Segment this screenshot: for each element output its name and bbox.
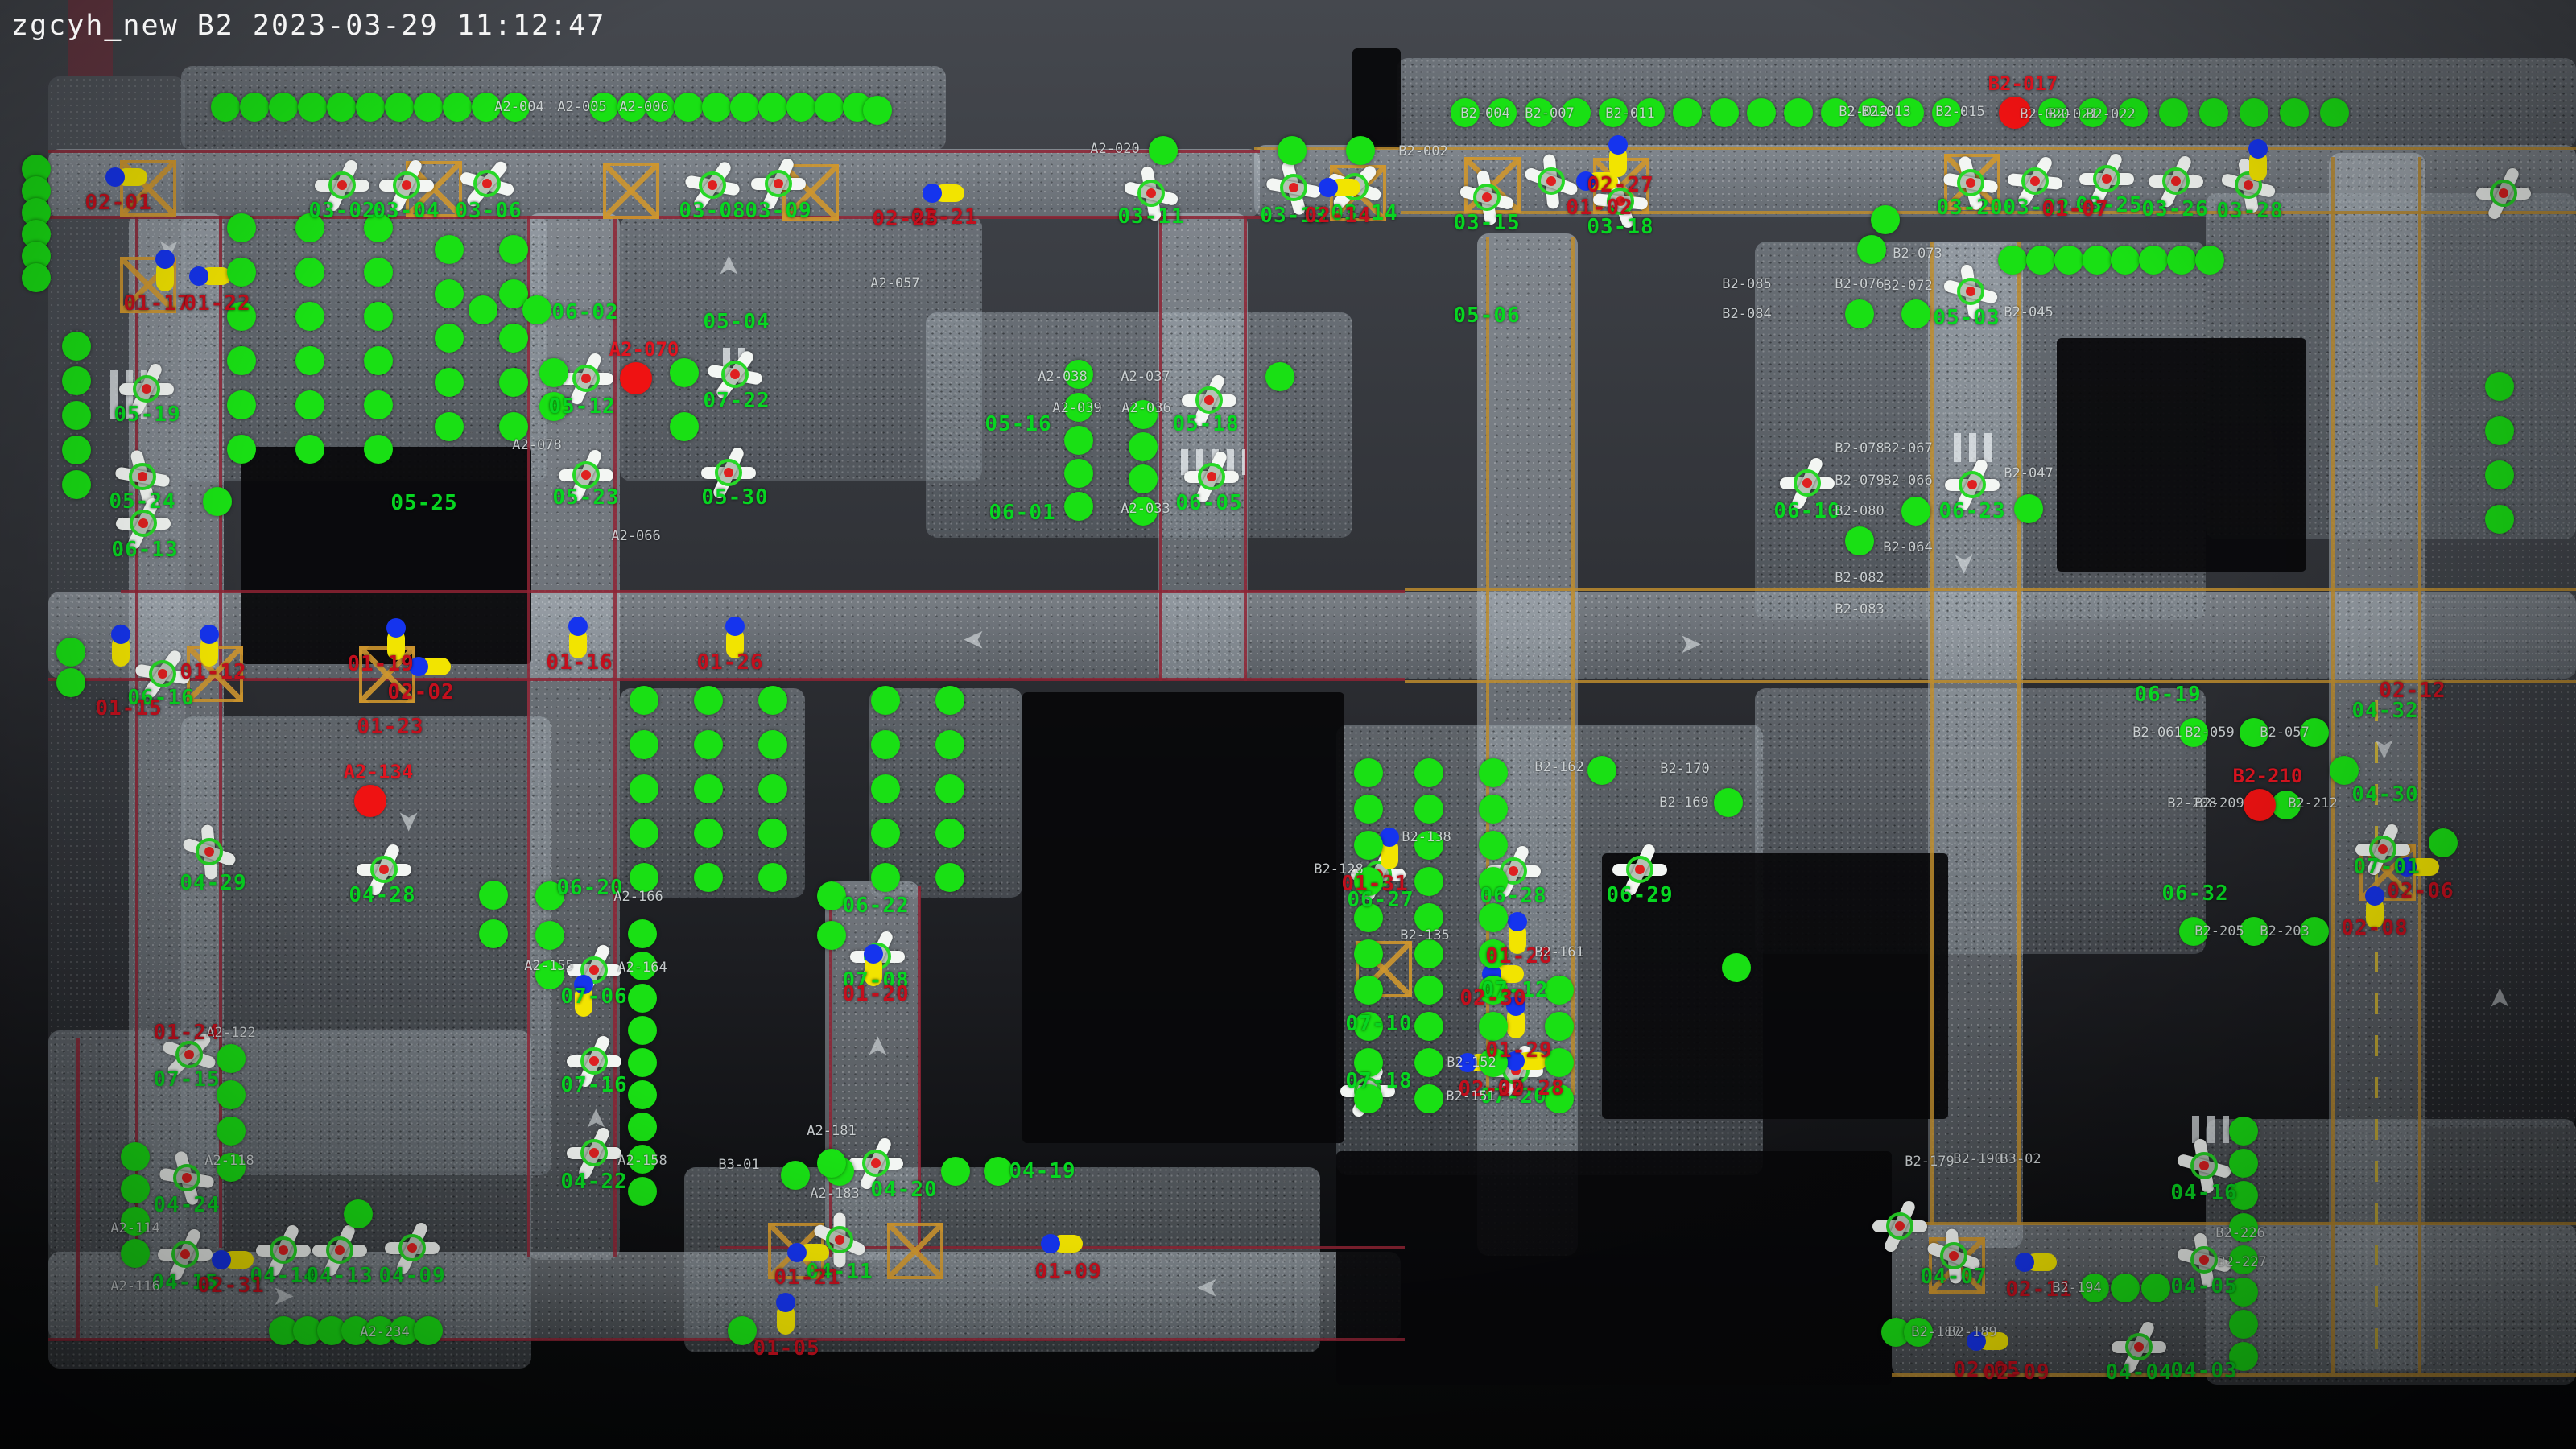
parking-spot-free-dot[interactable]: [1710, 98, 1739, 127]
parking-spot-free-dot[interactable]: [871, 863, 900, 892]
parking-spot-free-dot[interactable]: [694, 730, 723, 759]
spot-label: B2-004: [1460, 105, 1509, 122]
parking-spot-free-dot[interactable]: [670, 358, 699, 387]
nav-node-marker-icon[interactable]: [2475, 164, 2533, 222]
spot-label: B2-169: [1659, 795, 1708, 811]
spot-label: A2-066: [611, 528, 660, 544]
spot-label: B2-082: [1835, 570, 1884, 586]
parking-spot-free-dot[interactable]: [941, 1157, 970, 1186]
parking-spot-occupied-dot[interactable]: [354, 785, 386, 817]
node-center-icon: [2171, 176, 2181, 186]
parking-spot-free-dot[interactable]: [670, 412, 699, 441]
parking-spot-free-dot[interactable]: [1784, 98, 1813, 127]
parking-spot-free-dot[interactable]: [62, 366, 91, 395]
waypoint-label-red: 01-05: [753, 1336, 819, 1360]
spot-label: B2-013: [1861, 104, 1910, 120]
parking-spot-free-dot[interactable]: [295, 258, 324, 287]
parking-spot-free-dot[interactable]: [781, 1161, 810, 1190]
node-center-icon: [1546, 176, 1556, 186]
parking-spot-free-dot[interactable]: [815, 93, 844, 122]
parking-spot-free-dot[interactable]: [1414, 1012, 1443, 1041]
restricted-zone-box-icon: [887, 1223, 943, 1279]
parking-spot-free-dot[interactable]: [1346, 136, 1375, 165]
spot-label: B2-135: [1400, 927, 1449, 943]
parking-spot-free-dot[interactable]: [295, 390, 324, 419]
floor-monitor-app: ➤➤➤➤➤➤➤➤➤➤➤➤A2-070A2-134B2-017B2-21003-0…: [0, 0, 2576, 1449]
parking-spot-free-dot[interactable]: [1064, 459, 1093, 488]
parking-spot-free-dot[interactable]: [694, 819, 723, 848]
parking-spot-free-dot[interactable]: [56, 668, 85, 697]
robot-head-icon: [2248, 139, 2268, 159]
parking-spot-free-dot[interactable]: [628, 1113, 657, 1141]
node-center-icon: [138, 518, 148, 528]
lane-line-orange: [2017, 242, 2021, 1225]
parking-spot-free-dot[interactable]: [211, 93, 240, 122]
waypoint-label-green: 03-04: [373, 199, 440, 223]
parking-spot-free-dot[interactable]: [539, 358, 568, 387]
parking-spot-free-dot[interactable]: [2240, 98, 2268, 127]
parking-spot-free-dot[interactable]: [1064, 492, 1093, 521]
parking-spot-free-dot[interactable]: [758, 93, 787, 122]
node-center-icon: [182, 1173, 192, 1183]
nav-node-marker-icon[interactable]: [1871, 1197, 1929, 1255]
parking-spot-free-dot[interactable]: [758, 686, 787, 715]
lane-direction-arrow-icon: ➤: [712, 254, 745, 278]
parking-spot-free-dot[interactable]: [628, 1177, 657, 1206]
spot-label: A2-039: [1052, 400, 1101, 416]
lane-direction-arrow-icon: ➤: [963, 624, 986, 656]
waypoint-label-green: 04-30: [2351, 782, 2418, 807]
spot-label: B2-047: [2004, 465, 2053, 481]
waypoint-label-green: 06-32: [2161, 881, 2228, 906]
parking-spot-free-dot[interactable]: [1354, 795, 1383, 824]
node-center-icon: [184, 1050, 194, 1059]
parking-spot-free-dot[interactable]: [935, 819, 964, 848]
lane-direction-arrow-icon: ➤: [1196, 1272, 1220, 1304]
waypoint-label-green: 07-15: [153, 1067, 220, 1092]
parking-spot-free-dot[interactable]: [1414, 939, 1443, 968]
spot-label: B2-007: [1525, 105, 1574, 122]
waypoint-label-green: 04-05: [2170, 1274, 2237, 1298]
lane-line-red: [76, 1038, 80, 1338]
parking-spot-free-dot[interactable]: [630, 774, 658, 803]
parking-spot-free-dot[interactable]: [295, 302, 324, 331]
spot-label: A2-158: [617, 1153, 667, 1169]
agv-robot-marker-icon[interactable]: [923, 184, 966, 203]
parking-spot-free-dot[interactable]: [479, 919, 508, 948]
lane-direction-arrow-icon: ➤: [2483, 987, 2516, 1010]
parking-spot-free-dot[interactable]: [1845, 299, 1874, 328]
parking-spot-free-dot[interactable]: [1871, 205, 1900, 234]
robot-head-icon: [1041, 1234, 1060, 1253]
spot-label: B2-189: [1947, 1324, 1996, 1340]
parking-spot-free-dot[interactable]: [730, 93, 759, 122]
spot-label: A2-078: [512, 437, 561, 453]
parking-spot-free-dot[interactable]: [443, 93, 472, 122]
spot-label: B2-190: [1953, 1151, 2002, 1167]
parking-spot-free-dot[interactable]: [630, 819, 658, 848]
agv-robot-marker-icon[interactable]: [1041, 1234, 1084, 1253]
parking-spot-free-dot[interactable]: [435, 412, 464, 441]
parking-spot-free-dot[interactable]: [935, 863, 964, 892]
parking-spot-free-dot[interactable]: [1354, 831, 1383, 860]
parking-spot-free-dot[interactable]: [1479, 1012, 1508, 1041]
map-region: [2206, 1119, 2576, 1385]
spot-label: B2-226: [2215, 1225, 2264, 1241]
parking-spot-free-dot[interactable]: [2229, 1117, 2258, 1146]
parking-spot-free-dot[interactable]: [1414, 795, 1443, 824]
parking-spot-free-dot[interactable]: [522, 295, 551, 324]
parking-spot-free-dot[interactable]: [702, 93, 731, 122]
spot-label: A2-006: [619, 99, 668, 115]
parking-spot-free-dot[interactable]: [871, 819, 900, 848]
agv-robot-marker-icon[interactable]: [111, 625, 130, 668]
parking-spot-free-dot[interactable]: [1479, 795, 1508, 824]
spot-label: B2-170: [1660, 761, 1709, 777]
parking-spot-free-dot[interactable]: [121, 1239, 150, 1268]
parking-spot-free-dot[interactable]: [1901, 299, 1930, 328]
parking-spot-free-dot[interactable]: [2195, 246, 2224, 275]
parking-spot-free-dot[interactable]: [435, 235, 464, 264]
node-center-icon: [1802, 478, 1812, 488]
node-center-icon: [730, 369, 740, 379]
parking-spot-free-dot[interactable]: [364, 302, 393, 331]
parking-spot-free-dot[interactable]: [1747, 98, 1776, 127]
spot-label: B2-227: [2217, 1254, 2266, 1270]
parking-spot-free-dot[interactable]: [2330, 756, 2359, 785]
occupied-spot-label: A2-070: [609, 338, 679, 361]
parking-spot-free-dot[interactable]: [499, 235, 528, 264]
node-center-icon: [589, 1056, 599, 1066]
parking-spot-free-dot[interactable]: [628, 1080, 657, 1109]
spot-label: B2-083: [1835, 601, 1884, 617]
parking-spot-free-dot[interactable]: [2429, 828, 2458, 857]
parking-spot-free-dot[interactable]: [327, 93, 356, 122]
spot-label: B2-085: [1722, 276, 1771, 292]
parking-spot-free-dot[interactable]: [2159, 98, 2188, 127]
waypoint-label-green: 06-23: [1938, 499, 2005, 523]
lane-line-orange: [1930, 242, 1934, 1225]
waypoint-label-red: 01-16: [546, 650, 613, 675]
parking-spot-free-dot[interactable]: [871, 730, 900, 759]
parking-spot-free-dot[interactable]: [758, 730, 787, 759]
parking-spot-free-dot[interactable]: [935, 686, 964, 715]
node-center-icon: [589, 965, 599, 975]
parking-spot-free-dot[interactable]: [469, 295, 497, 324]
parking-spot-free-dot[interactable]: [2199, 98, 2228, 127]
parking-spot-free-dot[interactable]: [694, 863, 723, 892]
parking-spot-free-dot[interactable]: [1901, 497, 1930, 526]
node-center-icon: [708, 180, 717, 190]
parking-spot-free-dot[interactable]: [62, 332, 91, 361]
parking-spot-free-dot[interactable]: [1479, 758, 1508, 787]
node-center-icon: [1146, 188, 1156, 198]
parking-spot-free-dot[interactable]: [385, 93, 414, 122]
parking-spot-free-dot[interactable]: [1722, 953, 1751, 982]
parking-spot-free-dot[interactable]: [1129, 464, 1158, 493]
parking-spot-free-dot[interactable]: [414, 1316, 443, 1345]
parking-spot-free-dot[interactable]: [227, 346, 256, 375]
parking-spot-free-dot[interactable]: [1064, 426, 1093, 455]
parking-spot-free-dot[interactable]: [62, 470, 91, 499]
parking-spot-free-dot[interactable]: [535, 921, 564, 950]
parking-spot-free-dot[interactable]: [1414, 758, 1443, 787]
parking-spot-free-dot[interactable]: [630, 863, 658, 892]
waypoint-label-green: 05-25: [390, 491, 457, 515]
parking-spot-free-dot[interactable]: [758, 863, 787, 892]
node-center-icon: [335, 1245, 345, 1255]
parking-spot-free-dot[interactable]: [435, 279, 464, 308]
parking-spot-free-dot[interactable]: [1414, 976, 1443, 1005]
waypoint-label-red: 02-09: [1983, 1360, 2050, 1385]
agv-robot-marker-icon[interactable]: [155, 250, 175, 293]
parking-spot-free-dot[interactable]: [435, 368, 464, 397]
node-center-icon: [2102, 174, 2112, 184]
parking-spot-free-dot[interactable]: [630, 686, 658, 715]
parking-spot-free-dot[interactable]: [2141, 1274, 2170, 1302]
waypoint-label-red: 02-06: [2387, 879, 2454, 903]
agv-robot-marker-icon[interactable]: [1380, 828, 1399, 871]
parking-spot-free-dot[interactable]: [628, 1048, 657, 1077]
parking-spot-free-dot[interactable]: [298, 93, 327, 122]
parking-spot-free-dot[interactable]: [62, 401, 91, 430]
agv-robot-marker-icon[interactable]: [105, 167, 149, 187]
node-center-icon: [1482, 192, 1492, 202]
spot-label: A2-033: [1121, 501, 1170, 517]
waypoint-label-red: 01-15: [95, 696, 162, 720]
parking-spot-free-dot[interactable]: [121, 1142, 150, 1171]
waypoint-label-green: 03-09: [745, 199, 811, 223]
parking-spot-free-dot[interactable]: [295, 346, 324, 375]
parking-spot-free-dot[interactable]: [1479, 831, 1508, 860]
node-center-icon: [1967, 480, 1977, 489]
parking-spot-free-dot[interactable]: [1587, 756, 1616, 785]
parking-spot-free-dot[interactable]: [2014, 494, 2043, 523]
parking-spot-free-dot[interactable]: [2083, 246, 2112, 275]
spot-label: B3-01: [718, 1157, 759, 1173]
spot-label: B2-002: [1398, 143, 1447, 159]
waypoint-label-green: 05-06: [1453, 303, 1520, 328]
parking-spot-free-dot[interactable]: [2229, 1310, 2258, 1339]
node-center-icon: [1966, 287, 1975, 296]
parking-spot-free-dot[interactable]: [227, 390, 256, 419]
waypoint-label-red: 02-14: [1304, 204, 1371, 228]
parking-spot-free-dot[interactable]: [269, 93, 298, 122]
node-center-icon: [871, 1158, 881, 1168]
parking-spot-free-dot[interactable]: [758, 819, 787, 848]
parking-spot-free-dot[interactable]: [1414, 867, 1443, 896]
waypoint-label-green: 03-15: [1453, 211, 1520, 235]
parking-spot-free-dot[interactable]: [2229, 1149, 2258, 1178]
node-center-icon: [2199, 1255, 2209, 1265]
node-center-icon: [407, 1243, 417, 1253]
waypoint-label-red: 02-02: [387, 680, 454, 704]
parking-spot-free-dot[interactable]: [2485, 416, 2514, 445]
parking-spot-free-dot[interactable]: [2485, 372, 2514, 401]
parking-spot-free-dot[interactable]: [2320, 98, 2349, 127]
parking-spot-free-dot[interactable]: [817, 921, 846, 950]
parking-spot-free-dot[interactable]: [240, 93, 269, 122]
node-center-icon: [581, 470, 591, 480]
spot-label: B2-067: [1883, 440, 1932, 456]
parking-spot-free-dot[interactable]: [630, 730, 658, 759]
waypoint-label-green: 04-20: [870, 1178, 937, 1202]
node-center-icon: [1509, 866, 1518, 876]
parking-spot-free-dot[interactable]: [499, 324, 528, 353]
waypoint-label-green: 06-02: [551, 300, 618, 324]
spot-label: B2-084: [1722, 306, 1771, 322]
parking-spot-free-dot[interactable]: [62, 436, 91, 464]
parking-spot-free-dot[interactable]: [628, 984, 657, 1013]
waypoint-label-red: 02-25: [872, 207, 939, 231]
parking-spot-free-dot[interactable]: [1354, 976, 1383, 1005]
parking-spot-free-dot[interactable]: [227, 435, 256, 464]
node-center-icon: [1289, 183, 1298, 192]
parking-spot-free-dot[interactable]: [758, 774, 787, 803]
parking-spot-free-dot[interactable]: [935, 730, 964, 759]
spot-label: B2-073: [1893, 246, 1942, 262]
agv-robot-marker-icon[interactable]: [2015, 1253, 2058, 1272]
parking-spot-free-dot[interactable]: [217, 1117, 246, 1146]
parking-spot-free-dot[interactable]: [435, 324, 464, 353]
parking-spot-free-dot[interactable]: [56, 638, 85, 667]
parking-spot-free-dot[interactable]: [356, 93, 385, 122]
parking-spot-free-dot[interactable]: [2026, 246, 2055, 275]
parking-spot-free-dot[interactable]: [1265, 362, 1294, 391]
parking-spot-free-dot[interactable]: [1414, 1048, 1443, 1077]
spot-label: B2-151: [1446, 1088, 1495, 1104]
waypoint-label-green: 03-20: [1936, 196, 2003, 220]
lane-direction-arrow-icon: ➤: [1948, 552, 1980, 576]
waypoint-label-green: 04-22: [560, 1170, 627, 1194]
parking-spot-free-dot[interactable]: [203, 487, 232, 516]
parking-spot-free-dot[interactable]: [1857, 235, 1886, 264]
spot-label: A2-114: [110, 1220, 159, 1236]
node-center-icon: [1635, 865, 1645, 874]
parking-spot-free-dot[interactable]: [217, 1044, 246, 1073]
parking-spot-free-dot[interactable]: [694, 686, 723, 715]
parking-spot-free-dot[interactable]: [364, 390, 393, 419]
parking-spot-free-dot[interactable]: [863, 96, 892, 125]
waypoint-label-green: 04-07: [1920, 1265, 1987, 1289]
parking-spot-free-dot[interactable]: [674, 93, 703, 122]
spot-label: B2-066: [1883, 473, 1932, 489]
waypoint-label-green: 07-16: [560, 1073, 627, 1097]
parking-spot-free-dot[interactable]: [1673, 98, 1702, 127]
parking-spot-free-dot[interactable]: [1354, 939, 1383, 968]
parking-spot-free-dot[interactable]: [2485, 505, 2514, 534]
spot-label: B2-011: [1605, 105, 1654, 122]
spot-label: B2-205: [2194, 923, 2244, 939]
waypoint-label-green: 06-22: [842, 894, 909, 918]
waypoint-label-green: 04-29: [180, 871, 246, 895]
parking-spot-free-dot[interactable]: [2111, 246, 2140, 275]
robot-head-icon: [787, 1243, 807, 1262]
node-center-icon: [835, 1235, 844, 1245]
parking-spot-free-dot[interactable]: [121, 1174, 150, 1203]
parking-spot-free-dot[interactable]: [1354, 758, 1383, 787]
lane-line-orange: [1405, 588, 2576, 591]
agv-robot-marker-icon[interactable]: [1319, 178, 1362, 197]
parking-spot-free-dot[interactable]: [22, 263, 51, 292]
spot-label: B2-212: [2288, 795, 2337, 811]
robot-head-icon: [105, 167, 125, 187]
parking-spot-free-dot[interactable]: [871, 686, 900, 715]
parking-spot-free-dot[interactable]: [628, 1016, 657, 1045]
parking-spot-free-dot[interactable]: [1545, 976, 1574, 1005]
parking-spot-free-dot[interactable]: [2280, 98, 2309, 127]
agv-robot-marker-icon[interactable]: [776, 1293, 795, 1336]
parking-spot-free-dot[interactable]: [786, 93, 815, 122]
spot-label: B2-064: [1883, 539, 1932, 555]
spot-label: A2-118: [204, 1153, 254, 1169]
parking-spot-free-dot[interactable]: [479, 881, 508, 910]
agv-robot-marker-icon[interactable]: [212, 1250, 255, 1269]
lane-line-red: [48, 678, 1405, 681]
parking-spot-free-dot[interactable]: [227, 213, 256, 242]
parking-spot-free-dot[interactable]: [344, 1199, 373, 1228]
parking-spot-free-dot[interactable]: [217, 1080, 246, 1109]
waypoint-label-green: 03-02: [308, 199, 375, 223]
parking-spot-free-dot[interactable]: [1414, 1084, 1443, 1113]
spot-label: B2-080: [1835, 503, 1884, 519]
parking-spot-free-dot[interactable]: [1845, 526, 1874, 555]
parking-spot-free-dot[interactable]: [227, 258, 256, 287]
robot-head-icon: [1608, 135, 1628, 155]
parking-spot-free-dot[interactable]: [364, 435, 393, 464]
waypoint-label-green: 03-06: [455, 199, 522, 223]
spot-label: B2-138: [1402, 829, 1451, 845]
parking-spot-free-dot[interactable]: [1714, 788, 1743, 817]
waypoint-label-green: 04-19: [1009, 1159, 1075, 1183]
waypoint-label-red: 01-22: [184, 291, 250, 316]
waypoint-label-red: 01-12: [180, 660, 246, 684]
parking-spot-free-dot[interactable]: [364, 346, 393, 375]
parking-spot-free-dot[interactable]: [694, 774, 723, 803]
parking-spot-free-dot[interactable]: [414, 93, 443, 122]
parking-spot-free-dot[interactable]: [2111, 1274, 2140, 1302]
spot-label: B2-061: [2132, 724, 2182, 741]
parking-spot-occupied-dot[interactable]: [620, 362, 652, 394]
parking-spot-free-dot[interactable]: [1278, 136, 1307, 165]
waypoint-label-red: 02-27: [1587, 173, 1653, 197]
spot-label: A2-116: [110, 1278, 159, 1294]
parking-spot-free-dot[interactable]: [2485, 460, 2514, 489]
lane-direction-arrow-icon: ➤: [1679, 628, 1703, 660]
parking-spot-free-dot[interactable]: [1998, 246, 2027, 275]
parking-spot-free-dot[interactable]: [2167, 246, 2196, 275]
parking-spot-free-dot[interactable]: [499, 368, 528, 397]
parking-spot-free-dot[interactable]: [295, 435, 324, 464]
node-center-icon: [2378, 844, 2388, 854]
parking-spot-free-dot[interactable]: [817, 1149, 846, 1178]
map-canvas[interactable]: ➤➤➤➤➤➤➤➤➤➤➤➤A2-070A2-134B2-017B2-21003-0…: [0, 0, 2576, 1449]
parking-spot-free-dot[interactable]: [1149, 136, 1178, 165]
parking-spot-free-dot[interactable]: [1545, 1012, 1574, 1041]
parking-spot-free-dot[interactable]: [2054, 246, 2083, 275]
agv-robot-marker-icon[interactable]: [189, 266, 233, 286]
parking-spot-free-dot[interactable]: [935, 774, 964, 803]
agv-robot-marker-icon[interactable]: [2248, 139, 2268, 183]
parking-spot-free-dot[interactable]: [2139, 246, 2168, 275]
parking-spot-free-dot[interactable]: [1129, 432, 1158, 461]
parking-spot-free-dot[interactable]: [628, 919, 657, 948]
parking-spot-occupied-dot[interactable]: [2244, 789, 2276, 821]
parking-spot-free-dot[interactable]: [364, 258, 393, 287]
parking-spot-free-dot[interactable]: [871, 774, 900, 803]
node-center-icon: [1966, 178, 1975, 188]
agv-robot-marker-icon[interactable]: [409, 657, 452, 676]
